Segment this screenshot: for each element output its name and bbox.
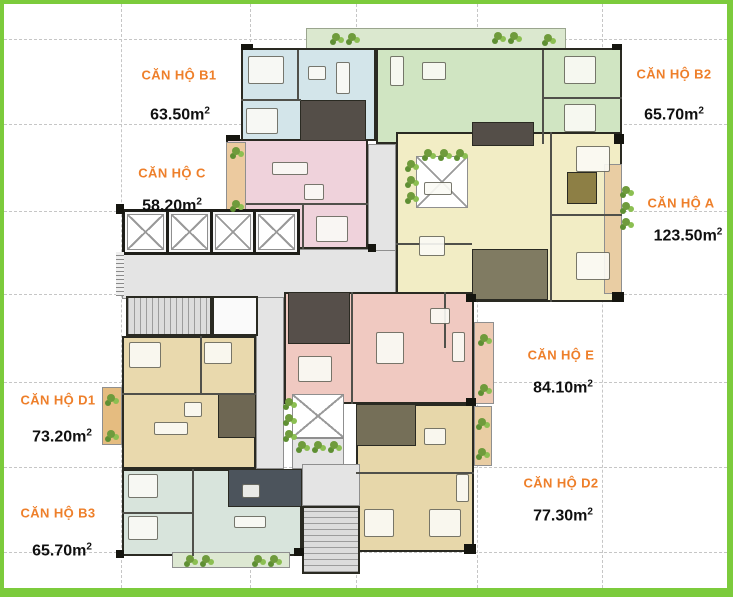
plant-icon bbox=[456, 149, 464, 157]
interior-wall bbox=[122, 512, 192, 514]
plant-icon bbox=[407, 160, 415, 168]
unit-c-area-sup: 2 bbox=[196, 196, 202, 207]
elevator-shaft bbox=[169, 212, 213, 252]
unit-b2-area-value: 65.70m bbox=[644, 107, 698, 124]
unit-d2-area-value: 77.30m bbox=[533, 508, 587, 525]
unit-d1-area-value: 73.20m bbox=[32, 429, 86, 446]
bed-icon bbox=[204, 342, 232, 364]
plant-icon bbox=[494, 32, 502, 40]
sofa-icon bbox=[336, 62, 350, 94]
interior-wall bbox=[200, 336, 202, 393]
sofa-icon bbox=[234, 516, 266, 528]
plant-icon bbox=[480, 334, 488, 342]
bed-icon bbox=[248, 56, 284, 84]
unit-e-area-value: 84.10m bbox=[533, 380, 587, 397]
lobby-room bbox=[212, 296, 258, 336]
unit-b1-label: CĂN HỘ B1 bbox=[141, 68, 216, 83]
plant-icon bbox=[107, 430, 115, 438]
unit-b1-area-sup: 2 bbox=[204, 105, 210, 116]
plant-icon bbox=[332, 33, 340, 41]
plant-icon bbox=[270, 555, 278, 563]
wall-corner bbox=[612, 292, 624, 302]
wall-corner bbox=[116, 204, 124, 214]
plant-icon bbox=[285, 414, 293, 422]
unit-b2-area: 65.70m2 bbox=[644, 105, 704, 124]
unit-b1-area: 63.50m2 bbox=[150, 105, 210, 124]
floor-plan-page: CĂN HỘ B1 63.50m2 CĂN HỘ B2 65.70m2 CĂN … bbox=[0, 0, 733, 597]
bathroom-d2 bbox=[356, 404, 416, 446]
plant-icon bbox=[622, 202, 630, 210]
plant-icon bbox=[314, 441, 322, 449]
interior-wall bbox=[550, 214, 622, 216]
plant-icon bbox=[478, 418, 486, 426]
bed-icon bbox=[429, 509, 461, 537]
unit-e-area: 84.10m2 bbox=[533, 378, 593, 397]
plant-icon bbox=[440, 149, 448, 157]
bed-icon bbox=[576, 146, 610, 172]
plant-icon bbox=[285, 430, 293, 438]
bed-icon bbox=[564, 56, 596, 84]
bed-icon bbox=[564, 104, 596, 132]
table-icon bbox=[184, 402, 202, 417]
plant-icon bbox=[107, 394, 115, 402]
entry-lobby-south bbox=[302, 464, 360, 506]
plant-icon bbox=[424, 149, 432, 157]
wall-corner bbox=[368, 244, 376, 252]
sofa-icon bbox=[390, 56, 404, 86]
unit-e-area-sup: 2 bbox=[587, 378, 593, 389]
interior-wall bbox=[542, 97, 622, 99]
bed-icon bbox=[128, 474, 158, 498]
unit-b3-label: CĂN HỘ B3 bbox=[20, 506, 95, 521]
bed-icon bbox=[316, 216, 348, 242]
wall-corner bbox=[116, 550, 124, 558]
interior-wall bbox=[302, 203, 304, 249]
light-well-center bbox=[292, 394, 344, 438]
unit-d1-area: 73.20m2 bbox=[32, 427, 92, 446]
wall-corner bbox=[612, 44, 622, 50]
bathroom-b1b2 bbox=[300, 100, 366, 141]
unit-a-area: 123.50m2 bbox=[654, 226, 723, 245]
elevator-shaft bbox=[256, 212, 297, 252]
elevator-shaft bbox=[213, 212, 257, 252]
unit-d2-area-sup: 2 bbox=[587, 506, 593, 517]
wall-corner bbox=[464, 544, 476, 554]
table-icon bbox=[424, 428, 446, 445]
plant-icon bbox=[407, 192, 415, 200]
plant-icon bbox=[232, 147, 240, 155]
interior-wall bbox=[550, 132, 552, 302]
bed-icon bbox=[376, 332, 404, 364]
interior-wall bbox=[192, 469, 194, 556]
unit-b1-area-value: 63.50m bbox=[150, 107, 204, 124]
elevator-icon bbox=[215, 214, 252, 250]
staircase-west bbox=[126, 296, 212, 336]
plant-icon bbox=[622, 186, 630, 194]
unit-b2-area-sup: 2 bbox=[698, 105, 704, 116]
elevator-icon bbox=[171, 214, 208, 250]
kitchen-a bbox=[567, 172, 597, 204]
unit-b3-area: 65.70m2 bbox=[32, 541, 92, 560]
bed-icon bbox=[246, 108, 278, 134]
table-icon bbox=[242, 484, 260, 498]
bathroom-b3 bbox=[228, 469, 302, 507]
plant-icon bbox=[478, 448, 486, 456]
plant-icon bbox=[330, 441, 338, 449]
table-icon bbox=[304, 184, 324, 200]
elevator-bank bbox=[122, 209, 300, 255]
plant-icon bbox=[348, 33, 356, 41]
plant-icon bbox=[202, 555, 210, 563]
wall-corner bbox=[466, 294, 476, 302]
unit-b3-area-value: 65.70m bbox=[32, 543, 86, 560]
unit-d1-label: CĂN HỘ D1 bbox=[20, 393, 95, 408]
plant-icon bbox=[232, 200, 240, 208]
unit-d2-area: 77.30m2 bbox=[533, 506, 593, 525]
balcony-d2 bbox=[474, 406, 492, 466]
sofa-icon bbox=[272, 162, 308, 175]
bathroom-b2 bbox=[472, 122, 534, 146]
interior-wall bbox=[351, 292, 353, 404]
plant-icon bbox=[298, 441, 306, 449]
interior-wall bbox=[246, 203, 368, 205]
staircase-south bbox=[302, 506, 360, 574]
wall-corner bbox=[241, 44, 253, 50]
elevator-shaft bbox=[125, 212, 169, 252]
bathroom-e bbox=[288, 292, 350, 344]
unit-d2-label: CĂN HỘ D2 bbox=[523, 476, 598, 491]
plant-icon bbox=[480, 384, 488, 392]
interior-wall bbox=[297, 50, 299, 100]
unit-c-area-value: 58.20m bbox=[142, 198, 196, 215]
wall-hatch bbox=[116, 252, 124, 296]
plant-icon bbox=[254, 555, 262, 563]
corridor-south bbox=[256, 297, 284, 469]
unit-d1-area-sup: 2 bbox=[86, 427, 92, 438]
plant-icon bbox=[622, 218, 630, 226]
bed-icon bbox=[298, 356, 332, 382]
plant-icon bbox=[186, 555, 194, 563]
sofa-icon bbox=[452, 332, 465, 362]
grid-line-horizontal bbox=[4, 552, 727, 553]
sofa-icon bbox=[154, 422, 188, 435]
bed-icon bbox=[364, 509, 394, 537]
plant-icon bbox=[407, 176, 415, 184]
plant-icon bbox=[510, 32, 518, 40]
unit-b3-area-sup: 2 bbox=[86, 541, 92, 552]
bed-icon bbox=[129, 342, 161, 368]
interior-wall bbox=[241, 99, 301, 101]
bed-icon bbox=[128, 516, 158, 540]
table-icon bbox=[422, 62, 446, 80]
wall-corner bbox=[226, 135, 240, 141]
bed-icon bbox=[576, 252, 610, 280]
corridor-north bbox=[368, 144, 396, 251]
interior-wall bbox=[122, 393, 256, 395]
table-icon bbox=[419, 236, 445, 256]
plant-icon bbox=[285, 398, 293, 406]
unit-c-area: 58.20m2 bbox=[142, 196, 202, 215]
unit-a-area-sup: 2 bbox=[717, 226, 723, 237]
unit-c-label: CĂN HỘ C bbox=[138, 166, 205, 181]
unit-a-label: CĂN HỘ A bbox=[648, 196, 715, 211]
table-icon bbox=[308, 66, 326, 80]
plant-icon bbox=[544, 34, 552, 42]
bathroom-d1 bbox=[218, 394, 256, 438]
roof-terrace bbox=[306, 28, 566, 50]
table-icon bbox=[430, 308, 450, 324]
sofa-icon bbox=[424, 182, 452, 195]
unit-e-label: CĂN HỘ E bbox=[528, 348, 595, 363]
wall-corner bbox=[466, 398, 476, 406]
unit-b2-label: CĂN HỘ B2 bbox=[636, 67, 711, 82]
unit-a-area-value: 123.50m bbox=[654, 228, 717, 245]
elevator-icon bbox=[127, 214, 164, 250]
bathroom-a bbox=[472, 249, 548, 300]
wall-corner bbox=[614, 134, 624, 144]
sofa-icon bbox=[456, 474, 469, 502]
wall-corner bbox=[294, 548, 304, 556]
elevator-icon bbox=[258, 214, 295, 250]
